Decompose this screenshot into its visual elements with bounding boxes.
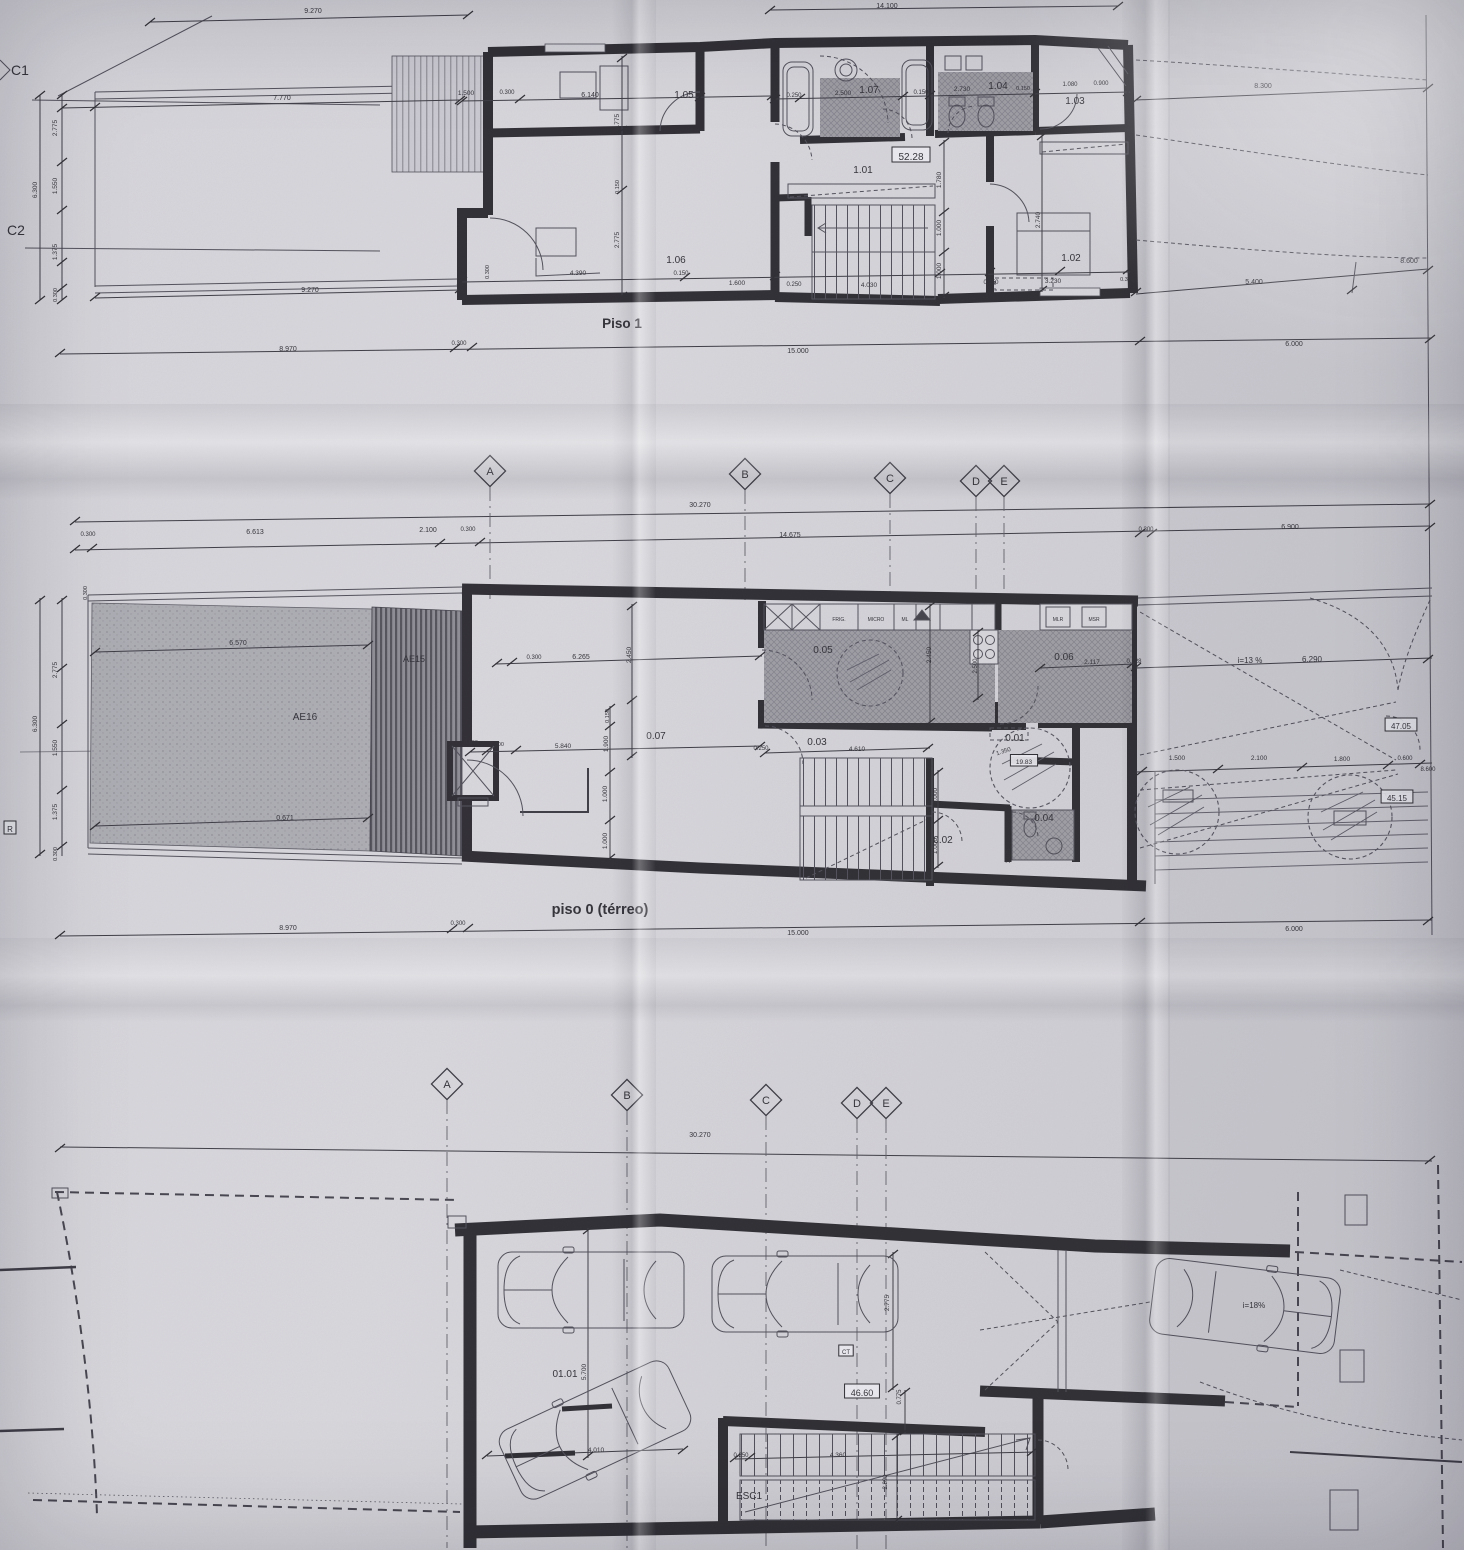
scanned-floorplan-sheet: Piso 1 9.27014.100C1C27.7702.7756.3001.5… [0,0,1464,1550]
paper-noise-overlay [0,0,1464,1550]
